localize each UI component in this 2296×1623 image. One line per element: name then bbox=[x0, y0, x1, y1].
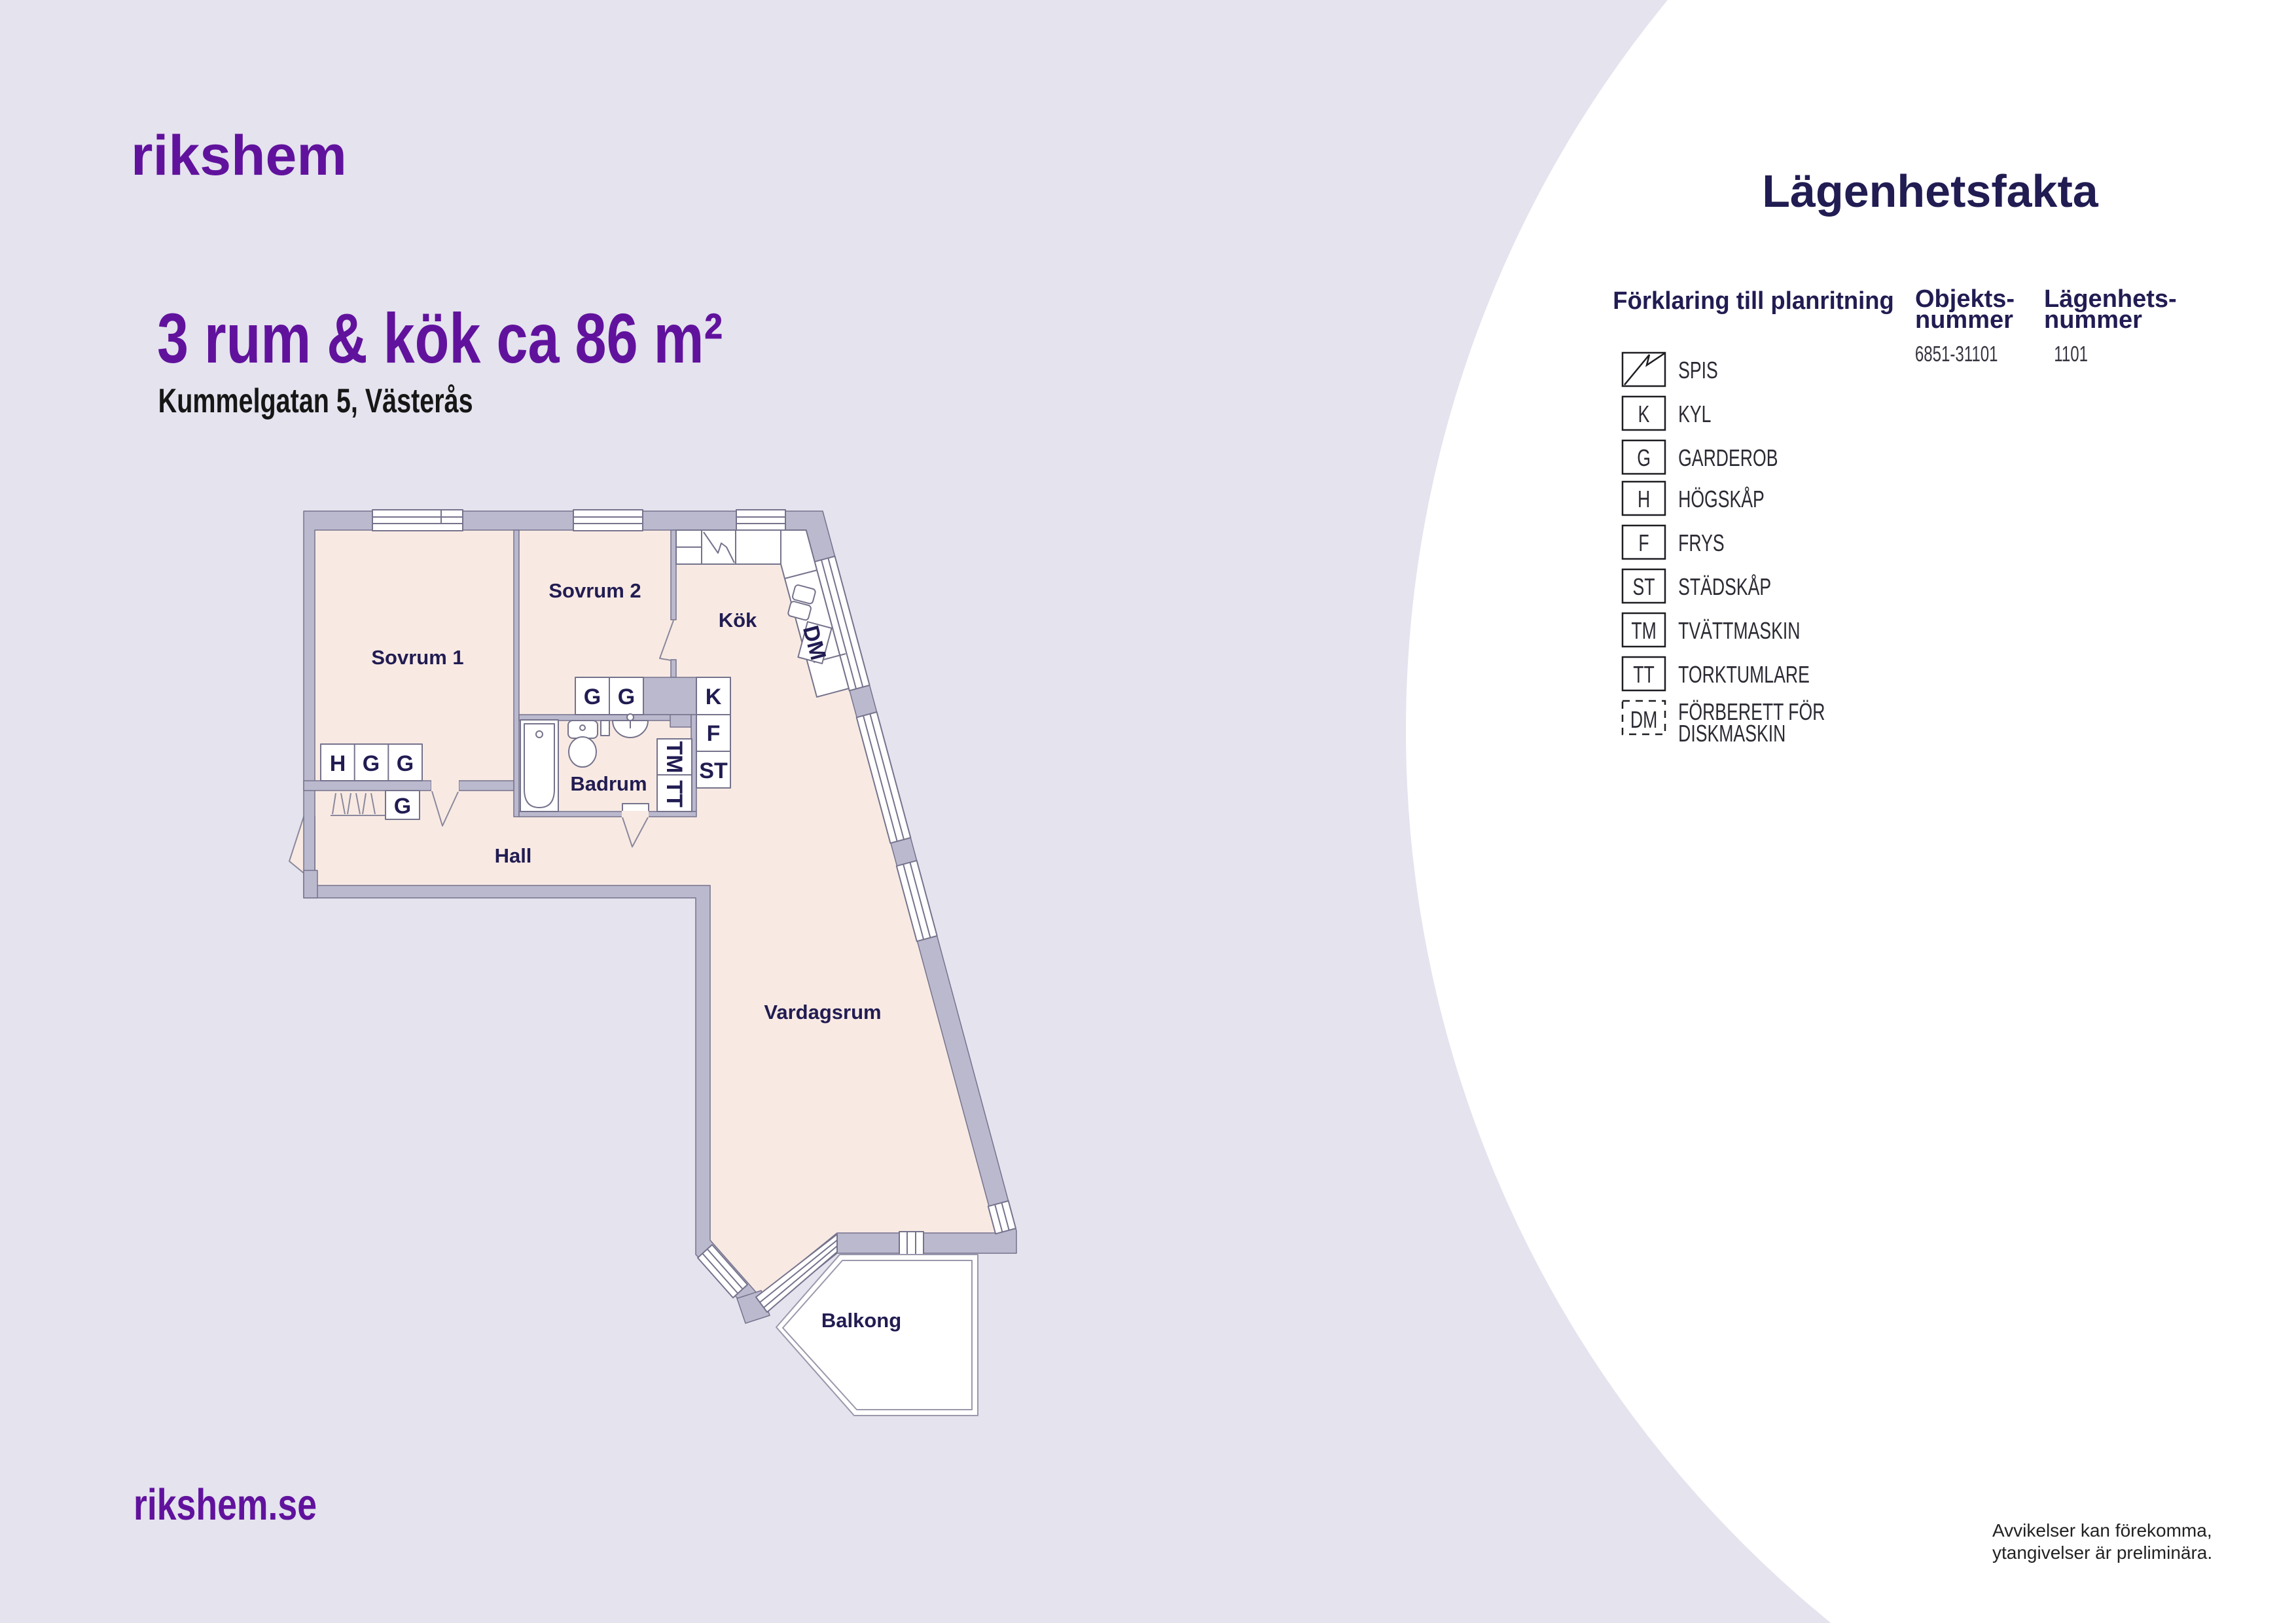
svg-text:Kummelgatan 5, Västerås: Kummelgatan 5, Västerås bbox=[158, 382, 473, 420]
svg-text:6851-31101: 6851-31101 bbox=[1915, 342, 1998, 366]
svg-text:K: K bbox=[1638, 401, 1650, 427]
svg-text:Sovrum 2: Sovrum 2 bbox=[548, 579, 641, 602]
svg-text:G: G bbox=[397, 751, 414, 776]
svg-text:nummer: nummer bbox=[2044, 306, 2142, 334]
svg-text:SPIS: SPIS bbox=[1678, 357, 1718, 383]
svg-text:F: F bbox=[1638, 529, 1649, 556]
svg-text:F: F bbox=[707, 721, 721, 746]
svg-text:FRYS: FRYS bbox=[1678, 529, 1725, 556]
svg-text:G: G bbox=[363, 751, 380, 776]
svg-text:Förklaring till planritning: Förklaring till planritning bbox=[1613, 286, 1894, 314]
svg-text:STÄDSKÅP: STÄDSKÅP bbox=[1678, 573, 1771, 600]
svg-text:DM: DM bbox=[1630, 706, 1657, 733]
svg-text:ST: ST bbox=[699, 758, 728, 783]
svg-text:Vardagsrum: Vardagsrum bbox=[764, 1001, 881, 1024]
svg-text:Balkong: Balkong bbox=[821, 1309, 901, 1332]
svg-text:G: G bbox=[394, 794, 411, 819]
svg-text:ytangivelser är preliminära.: ytangivelser är preliminära. bbox=[1992, 1543, 2212, 1563]
svg-text:TT: TT bbox=[1633, 661, 1655, 688]
svg-text:DISKMASKIN: DISKMASKIN bbox=[1678, 720, 1785, 747]
svg-text:Kök: Kök bbox=[719, 609, 757, 632]
svg-text:HÖGSKÅP: HÖGSKÅP bbox=[1678, 486, 1765, 512]
svg-text:Badrum: Badrum bbox=[570, 772, 647, 795]
svg-text:rikshem: rikshem bbox=[131, 124, 347, 187]
svg-text:G: G bbox=[1637, 444, 1651, 471]
svg-text:TM: TM bbox=[662, 741, 687, 773]
svg-text:H: H bbox=[1638, 486, 1650, 512]
svg-text:ST: ST bbox=[1633, 573, 1655, 600]
svg-text:K: K bbox=[706, 685, 722, 709]
svg-text:nummer: nummer bbox=[1915, 306, 2013, 334]
svg-text:Sovrum 1: Sovrum 1 bbox=[371, 646, 463, 669]
svg-text:TVÄTTMASKIN: TVÄTTMASKIN bbox=[1678, 617, 1800, 644]
svg-text:Hall: Hall bbox=[495, 844, 532, 867]
svg-text:G: G bbox=[618, 685, 635, 709]
svg-text:KYL: KYL bbox=[1678, 401, 1711, 427]
svg-text:1101: 1101 bbox=[2054, 342, 2088, 366]
svg-text:Lägenhetsfakta: Lägenhetsfakta bbox=[1762, 166, 2099, 217]
svg-text:rikshem.se: rikshem.se bbox=[134, 1480, 317, 1529]
svg-text:G: G bbox=[584, 685, 601, 709]
svg-text:H: H bbox=[330, 751, 346, 776]
svg-text:TORKTUMLARE: TORKTUMLARE bbox=[1678, 661, 1810, 688]
svg-text:TT: TT bbox=[662, 780, 687, 808]
svg-text:Avvikelser kan förekomma,: Avvikelser kan förekomma, bbox=[1992, 1520, 2212, 1541]
svg-text:GARDEROB: GARDEROB bbox=[1678, 444, 1778, 471]
svg-text:TM: TM bbox=[1631, 617, 1656, 644]
svg-text:3 rum & kök ca 86 m²: 3 rum & kök ca 86 m² bbox=[157, 298, 723, 378]
